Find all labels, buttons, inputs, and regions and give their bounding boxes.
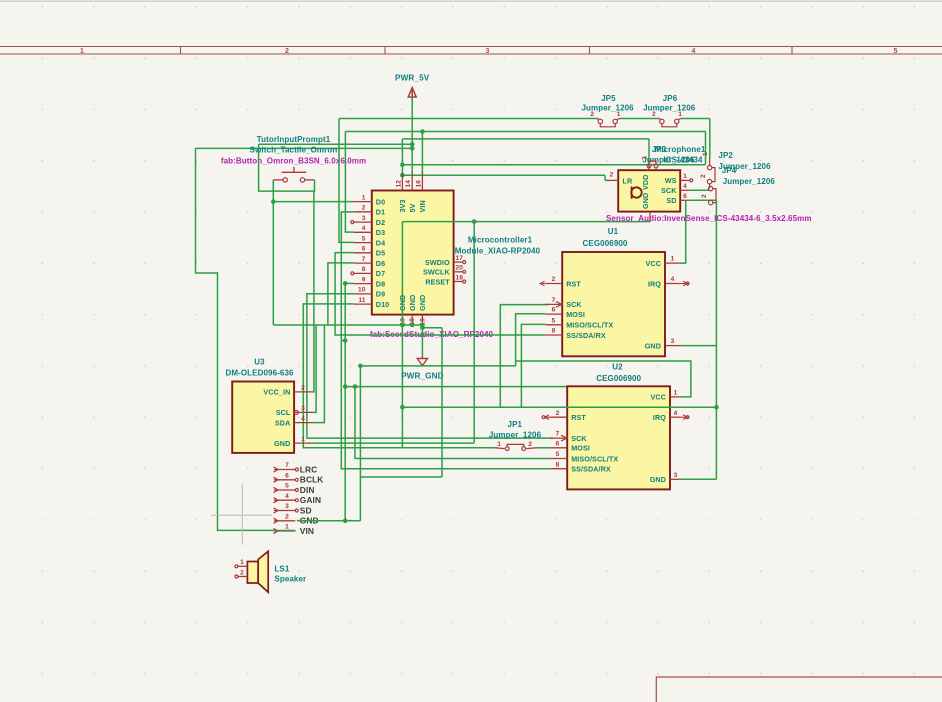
svg-text:D9: D9: [376, 290, 385, 299]
svg-text:Microphone1: Microphone1: [655, 145, 706, 154]
svg-text:Sensor_Audio:InvenSense_ICS-43: Sensor_Audio:InvenSense_ICS-43434-6_3.5x…: [606, 214, 812, 223]
svg-text:2: 2: [556, 410, 560, 417]
svg-text:JP1: JP1: [508, 420, 523, 429]
svg-text:SS/SDA/RX: SS/SDA/RX: [571, 465, 611, 474]
svg-text:Jumper_1206: Jumper_1206: [581, 103, 634, 112]
svg-text:LR: LR: [623, 176, 633, 185]
svg-text:GAIN: GAIN: [300, 495, 321, 505]
svg-text:PWR_5V: PWR_5V: [395, 74, 430, 83]
svg-text:1: 1: [362, 194, 366, 201]
svg-text:2: 2: [652, 111, 656, 118]
svg-text:D0: D0: [376, 197, 385, 206]
svg-text:SCK: SCK: [566, 300, 582, 309]
svg-text:6: 6: [556, 440, 560, 447]
svg-text:2: 2: [701, 194, 708, 198]
svg-text:5: 5: [552, 317, 556, 324]
svg-text:JP2: JP2: [718, 151, 733, 160]
svg-text:U1: U1: [608, 227, 619, 236]
svg-text:D5: D5: [376, 249, 385, 258]
svg-text:SCK: SCK: [571, 434, 587, 443]
svg-text:MISO/SCL/TX: MISO/SCL/TX: [566, 321, 613, 330]
svg-text:IRQ: IRQ: [653, 413, 666, 422]
svg-text:9: 9: [362, 276, 366, 283]
svg-text:1: 1: [240, 559, 244, 566]
svg-text:6: 6: [552, 307, 556, 314]
svg-text:2: 2: [240, 569, 244, 576]
svg-text:1: 1: [301, 436, 305, 443]
svg-text:5: 5: [285, 483, 289, 490]
svg-text:Speaker: Speaker: [274, 575, 306, 584]
svg-text:4: 4: [671, 276, 675, 283]
svg-text:4: 4: [683, 183, 687, 190]
svg-text:6: 6: [285, 472, 289, 479]
svg-text:1: 1: [285, 524, 289, 531]
svg-text:D6: D6: [376, 259, 385, 268]
svg-text:SWCLK: SWCLK: [423, 268, 451, 277]
svg-text:1: 1: [683, 173, 687, 180]
svg-text:3: 3: [671, 338, 675, 345]
svg-text:D2: D2: [376, 218, 385, 227]
svg-text:VCC_IN: VCC_IN: [263, 388, 290, 397]
svg-text:D4: D4: [376, 238, 385, 247]
svg-text:PWR_GND: PWR_GND: [401, 371, 444, 380]
svg-text:1: 1: [497, 441, 501, 448]
svg-text:2: 2: [528, 441, 532, 448]
svg-text:LRC: LRC: [300, 464, 318, 474]
svg-text:GND: GND: [274, 439, 290, 448]
svg-text:SWDIO: SWDIO: [425, 258, 450, 267]
svg-text:18: 18: [456, 274, 464, 281]
svg-text:Switch_Tactile_Omron: Switch_Tactile_Omron: [250, 146, 338, 155]
svg-text:4: 4: [674, 410, 678, 417]
svg-text:GND: GND: [650, 475, 666, 484]
svg-text:2: 2: [700, 174, 707, 178]
svg-text:4: 4: [692, 48, 696, 55]
svg-text:ICS-43434: ICS-43434: [663, 155, 703, 164]
svg-text:GND: GND: [641, 193, 650, 209]
svg-text:7: 7: [285, 462, 289, 469]
svg-text:MISO/SCL/TX: MISO/SCL/TX: [571, 454, 618, 463]
svg-text:7: 7: [556, 431, 560, 438]
svg-text:2: 2: [301, 385, 305, 392]
svg-text:1: 1: [678, 111, 682, 118]
svg-text:12: 12: [395, 180, 402, 188]
svg-text:VCC: VCC: [651, 393, 666, 402]
svg-text:1: 1: [617, 111, 621, 118]
svg-text:20: 20: [456, 265, 464, 272]
svg-text:8: 8: [556, 461, 560, 468]
svg-text:RESET: RESET: [425, 277, 450, 286]
svg-text:4: 4: [362, 225, 366, 232]
svg-text:RST: RST: [566, 279, 581, 288]
svg-text:7: 7: [362, 256, 366, 263]
svg-text:MOSI: MOSI: [571, 444, 590, 453]
svg-text:5: 5: [362, 235, 366, 242]
svg-text:TutorInputPrompt1: TutorInputPrompt1: [257, 135, 331, 144]
svg-text:JP6: JP6: [663, 94, 678, 103]
svg-text:U3: U3: [254, 357, 265, 366]
svg-text:MOSI: MOSI: [566, 310, 585, 319]
svg-text:LS1: LS1: [274, 565, 289, 574]
svg-text:CEG006900: CEG006900: [583, 239, 628, 248]
svg-text:5: 5: [894, 48, 898, 55]
svg-text:DM-OLED096-636: DM-OLED096-636: [225, 369, 294, 378]
svg-text:1: 1: [671, 256, 675, 263]
svg-text:1: 1: [674, 390, 678, 397]
svg-text:RST: RST: [571, 413, 586, 422]
svg-text:3: 3: [301, 405, 305, 412]
svg-text:6: 6: [362, 246, 366, 253]
svg-text:SS/SDA/RX: SS/SDA/RX: [566, 331, 606, 340]
svg-text:10: 10: [358, 287, 366, 294]
svg-text:Microcontroller1: Microcontroller1: [468, 235, 533, 244]
svg-text:Jumper_1206: Jumper_1206: [723, 177, 776, 186]
svg-text:D10: D10: [376, 300, 390, 309]
svg-text:14: 14: [405, 180, 412, 188]
svg-text:3: 3: [486, 48, 490, 55]
svg-text:6: 6: [683, 193, 687, 200]
svg-text:SD: SD: [300, 505, 312, 515]
svg-text:3: 3: [362, 215, 366, 222]
svg-text:GND: GND: [645, 341, 661, 350]
svg-text:Jumper_1206: Jumper_1206: [489, 431, 542, 440]
svg-text:CEG006900: CEG006900: [596, 374, 641, 383]
svg-text:GND: GND: [408, 295, 417, 311]
svg-text:8: 8: [362, 266, 366, 273]
svg-text:IRQ: IRQ: [648, 279, 661, 288]
svg-text:D8: D8: [376, 279, 385, 288]
svg-text:Jumper_1206: Jumper_1206: [643, 103, 696, 112]
svg-text:5V: 5V: [408, 203, 417, 212]
svg-text:GND: GND: [418, 295, 427, 311]
svg-text:D7: D7: [376, 269, 385, 278]
svg-text:11: 11: [358, 297, 365, 304]
svg-text:SCK: SCK: [661, 186, 677, 195]
svg-text:WS: WS: [665, 176, 677, 185]
svg-text:U2: U2: [612, 362, 623, 371]
svg-text:VIN: VIN: [418, 200, 427, 212]
svg-text:VCC: VCC: [646, 259, 661, 268]
svg-text:VDD: VDD: [641, 175, 650, 190]
svg-text:D1: D1: [376, 208, 385, 217]
svg-text:fab:Button_Omron_B3SN_6.0x6.0m: fab:Button_Omron_B3SN_6.0x6.0mm: [221, 157, 366, 166]
svg-text:3: 3: [674, 472, 678, 479]
svg-text:SDA: SDA: [275, 418, 290, 427]
svg-text:SD: SD: [666, 196, 676, 205]
svg-text:JP4: JP4: [722, 166, 737, 175]
svg-text:2: 2: [285, 48, 289, 55]
svg-text:3: 3: [285, 503, 289, 510]
svg-text:4: 4: [301, 415, 305, 422]
svg-text:2: 2: [590, 111, 594, 118]
svg-text:BCLK: BCLK: [300, 475, 324, 485]
svg-text:3V3: 3V3: [398, 199, 407, 212]
svg-text:2: 2: [362, 205, 366, 212]
svg-text:JP5: JP5: [601, 94, 616, 103]
svg-text:VIN: VIN: [300, 526, 314, 536]
svg-text:1: 1: [80, 48, 84, 55]
svg-text:DIN: DIN: [300, 485, 315, 495]
svg-text:4: 4: [285, 493, 289, 500]
svg-text:Module_XIAO-RP2040: Module_XIAO-RP2040: [455, 247, 541, 256]
svg-text:2: 2: [610, 172, 614, 179]
svg-text:D3: D3: [376, 228, 385, 237]
svg-text:5: 5: [556, 451, 560, 458]
svg-text:2: 2: [552, 276, 556, 283]
svg-text:SCL: SCL: [276, 408, 291, 417]
svg-text:2: 2: [285, 513, 289, 520]
svg-text:1: 1: [702, 152, 709, 156]
svg-text:3: 3: [642, 156, 649, 160]
svg-text:17: 17: [456, 255, 464, 262]
svg-text:16: 16: [415, 180, 422, 188]
svg-text:8: 8: [552, 328, 556, 335]
svg-text:7: 7: [552, 297, 556, 304]
